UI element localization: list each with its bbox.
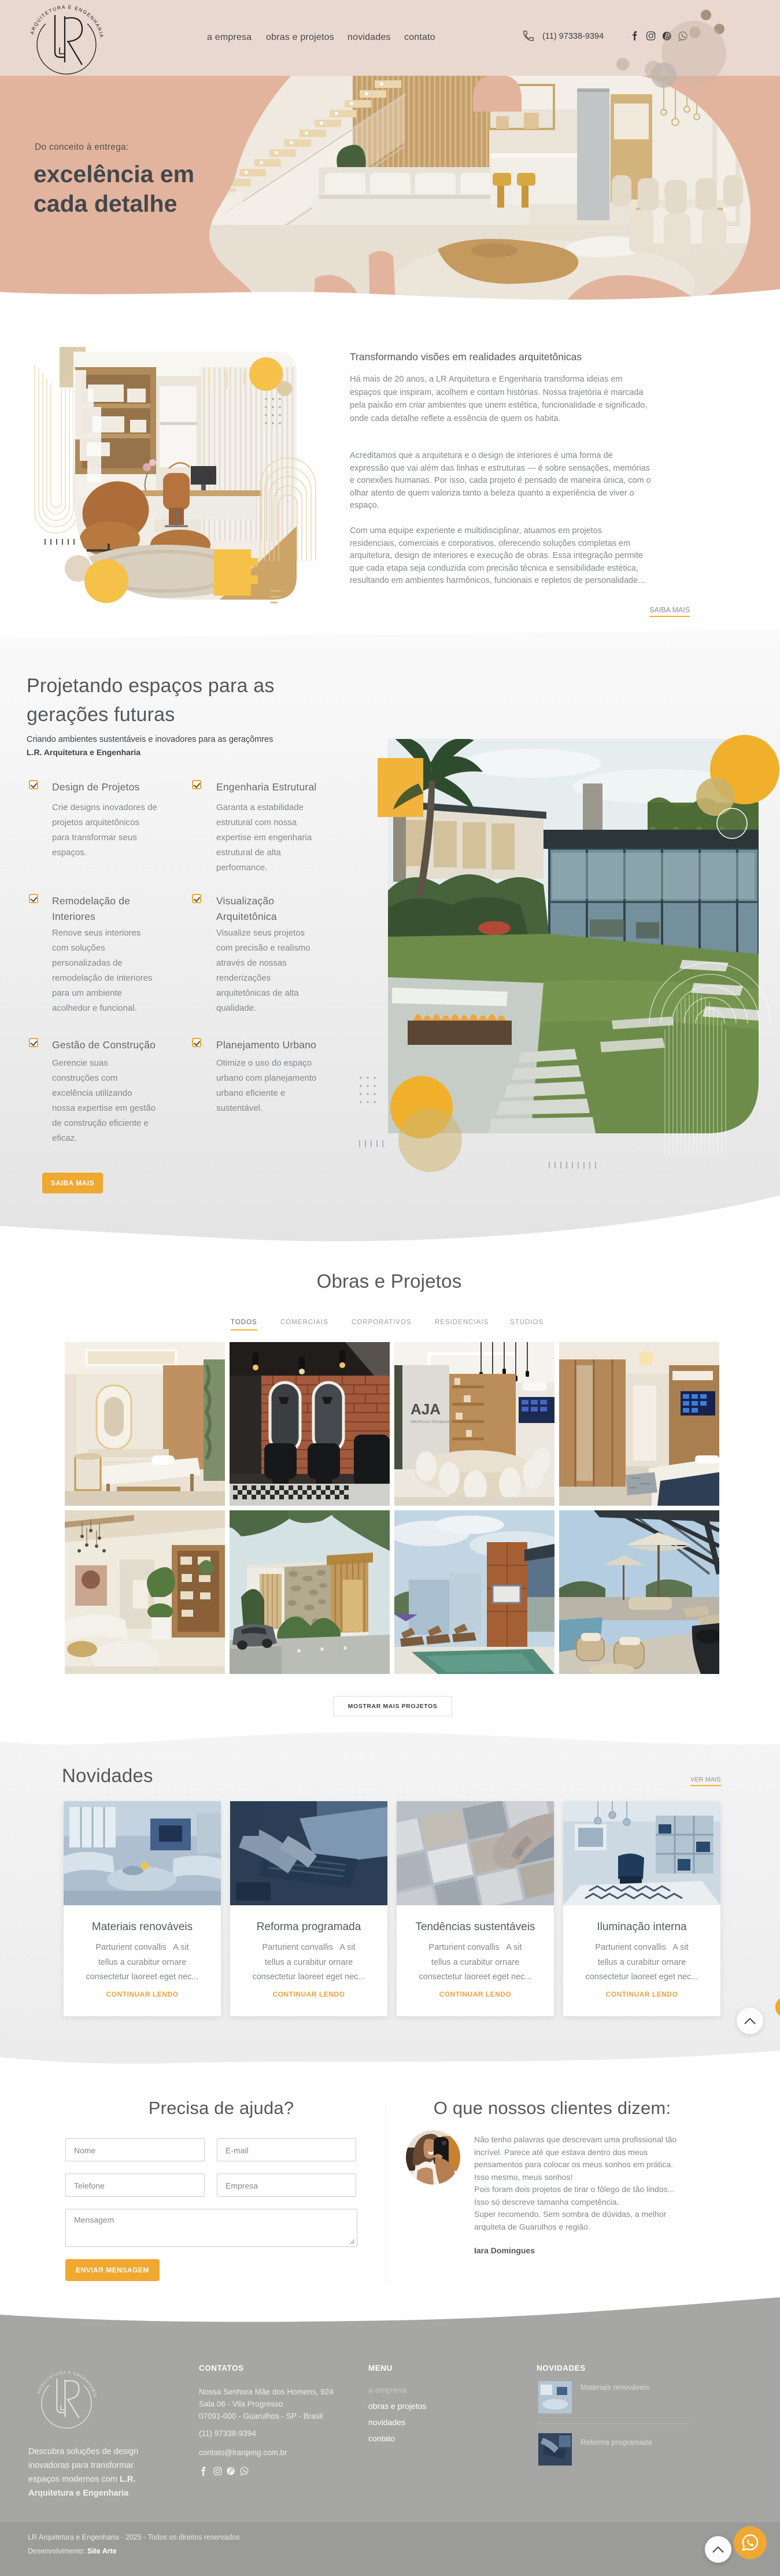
svg-text:ARQUITETURA E ENGENHARIA: ARQUITETURA E ENGENHARIA <box>37 2371 97 2398</box>
svg-text:GRUPO AJA TECNOLOGIA: GRUPO AJA TECNOLOGIA <box>411 1421 454 1424</box>
svg-text:AJA: AJA <box>411 1400 441 1418</box>
